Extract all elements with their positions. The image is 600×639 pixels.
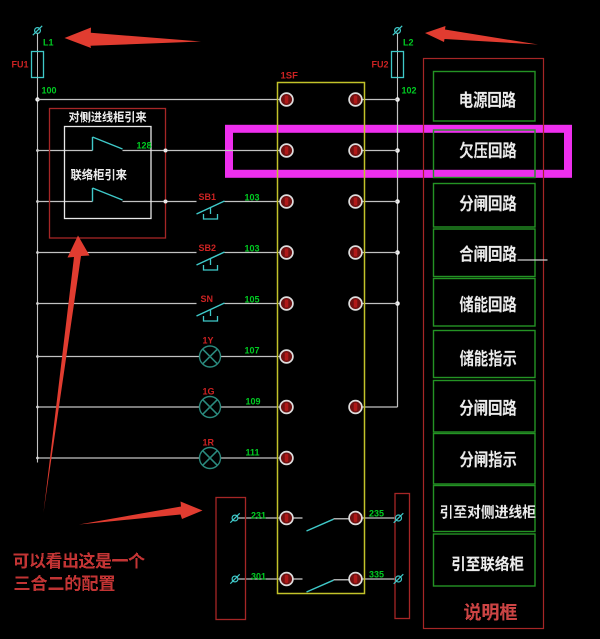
- svg-text:1G: 1G: [203, 387, 215, 397]
- svg-text:103: 103: [245, 193, 260, 203]
- svg-text:FU1: FU1: [12, 60, 29, 70]
- svg-text:105: 105: [245, 295, 260, 305]
- svg-text:L2: L2: [403, 38, 414, 48]
- svg-text:100: 100: [42, 86, 57, 96]
- svg-text:SB2: SB2: [199, 243, 217, 253]
- svg-text:111: 111: [246, 448, 260, 458]
- svg-text:1R: 1R: [203, 438, 215, 448]
- svg-text:1SF: 1SF: [281, 71, 299, 82]
- svg-text:L1: L1: [43, 38, 54, 48]
- svg-text:103: 103: [245, 244, 260, 254]
- svg-text:SB1: SB1: [199, 192, 217, 202]
- svg-text:301: 301: [251, 572, 266, 582]
- svg-text:SN: SN: [201, 294, 214, 304]
- svg-text:128: 128: [137, 141, 152, 151]
- svg-text:109: 109: [246, 397, 261, 407]
- svg-text:231: 231: [251, 511, 266, 521]
- svg-text:107: 107: [245, 346, 260, 356]
- svg-text:102: 102: [402, 86, 417, 96]
- svg-text:FU2: FU2: [372, 60, 389, 70]
- svg-text:1Y: 1Y: [203, 336, 214, 346]
- svg-text:335: 335: [369, 570, 384, 580]
- svg-text:235: 235: [369, 509, 384, 519]
